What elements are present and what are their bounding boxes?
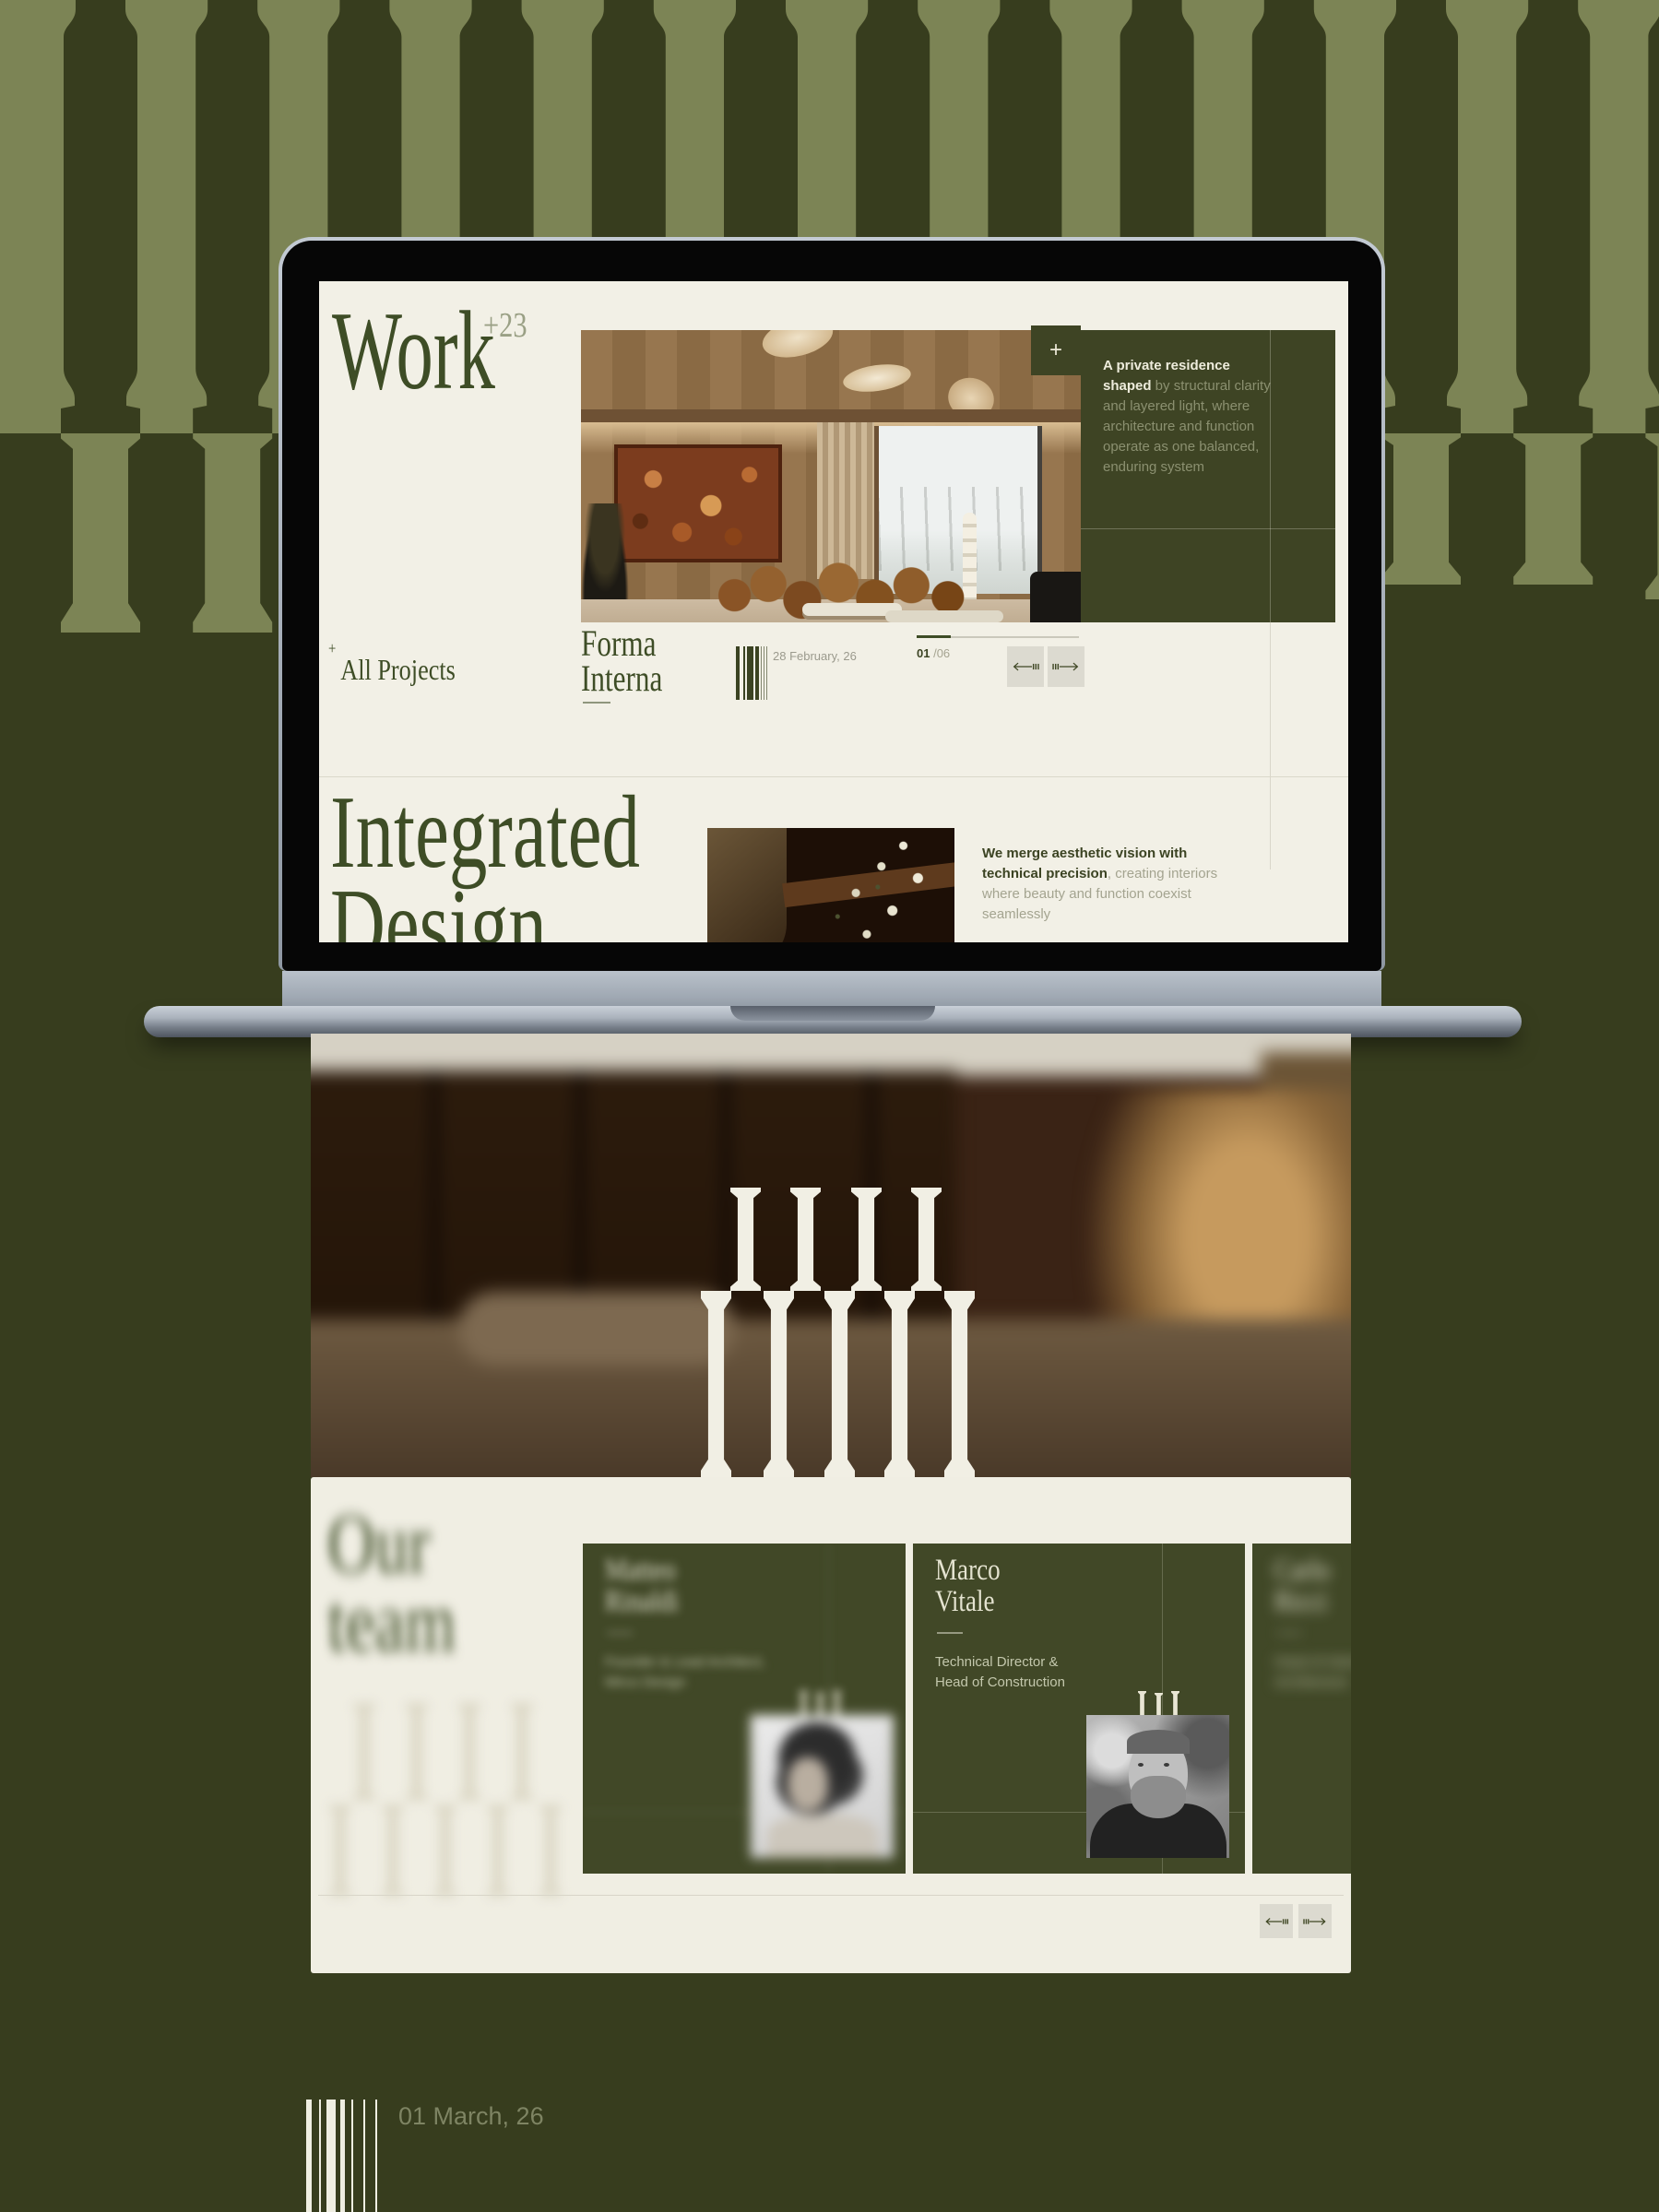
previous-slide-button[interactable] [1007,646,1044,687]
columns-ornament-small [329,1698,587,1901]
snowy-trees [879,487,1037,571]
team-card-marco[interactable]: MarcoVitale Technical Director &Head of … [913,1544,1245,1874]
project-name[interactable]: FormaInterna [581,626,662,696]
member-portrait [751,1715,894,1858]
coffee-table [885,610,1003,622]
member-portrait [1086,1715,1229,1858]
carousel-progress-fill [917,635,951,638]
team-card-carlo[interactable]: CarloRicci Head of InteriorArchitecture [1252,1544,1351,1874]
curtain [817,422,874,579]
footer-date: 01 March, 26 [398,2102,544,2131]
all-projects-link[interactable]: +All Projects [328,639,456,687]
member-role: Head of InteriorArchitecture [1274,1652,1351,1693]
panel-grid-line-vertical [1270,330,1271,622]
section-title: IntegratedDesign [330,787,640,942]
team-heading: Ourteam [327,1505,456,1661]
plus-glyph: + [328,639,336,657]
laptop-hinge [282,971,1381,1006]
wall-tapestry [614,444,782,562]
team-section: Ourteam MatteoRinaldi Founder & Lead Arc… [311,1477,1351,1973]
laptop-base [144,1006,1522,1037]
pillow [458,1292,735,1366]
team-card-matteo[interactable]: MatteoRinaldi Founder & Lead Architect,M… [583,1544,906,1874]
project-name-underline [583,702,610,704]
hero-project-image[interactable] [581,330,1081,622]
team-cards-row: MatteoRinaldi Founder & Lead Architect,M… [583,1544,1351,1874]
ceiling-soffit [581,409,1081,422]
project-description-panel: A private residence shaped by structural… [1081,330,1335,622]
next-slide-button[interactable] [1048,646,1084,687]
member-role: Founder & Lead Architect,Mirco Design [605,1652,764,1693]
grid-line-extension [1270,622,1271,869]
member-role: Technical Director &Head of Construction [935,1652,1065,1693]
armchair [1030,572,1081,622]
blurred-bedroom-photo [311,1034,1351,1477]
expand-project-button[interactable]: + [1031,325,1081,375]
plant [581,503,629,603]
member-name: CarloRicci [1274,1555,1330,1618]
barcode-graphic [736,646,767,700]
projects-count-badge: +23 [483,305,527,346]
laptop-lid-notch [730,1006,935,1021]
arrow-left-icon [1264,1915,1288,1928]
arrow-right-icon [1303,1915,1327,1928]
team-divider [318,1895,1344,1896]
team-next-button[interactable] [1298,1904,1332,1938]
section-description: We merge aesthetic vision with technical… [982,844,1250,925]
name-underline [1276,1632,1302,1634]
member-name: MarcoVitale [935,1555,1001,1618]
page-title: Work [332,302,495,400]
slide-counter: 01 /06 [917,646,950,660]
flower-still-image [707,828,954,942]
all-projects-label: All Projects [340,653,456,686]
poster-background: Work +23 +All Projects + [0,0,1659,2212]
arrow-left-icon [1012,659,1039,674]
panel-grid-line-horizontal [1081,528,1335,529]
footer-barcode [306,2100,384,2212]
name-underline [937,1632,963,1634]
team-previous-button[interactable] [1260,1904,1293,1938]
project-date: 28 February, 26 [773,649,857,663]
arrow-right-icon [1052,659,1080,674]
bedroom-photo-section [311,1034,1351,1477]
project-description: A private residence shaped by structural… [1103,356,1280,478]
name-underline [607,1632,633,1634]
white-flowers [772,828,954,942]
laptop-screen-page: Work +23 +All Projects + [319,281,1348,942]
plus-icon: + [1049,337,1062,362]
member-name: MatteoRinaldi [605,1555,679,1618]
